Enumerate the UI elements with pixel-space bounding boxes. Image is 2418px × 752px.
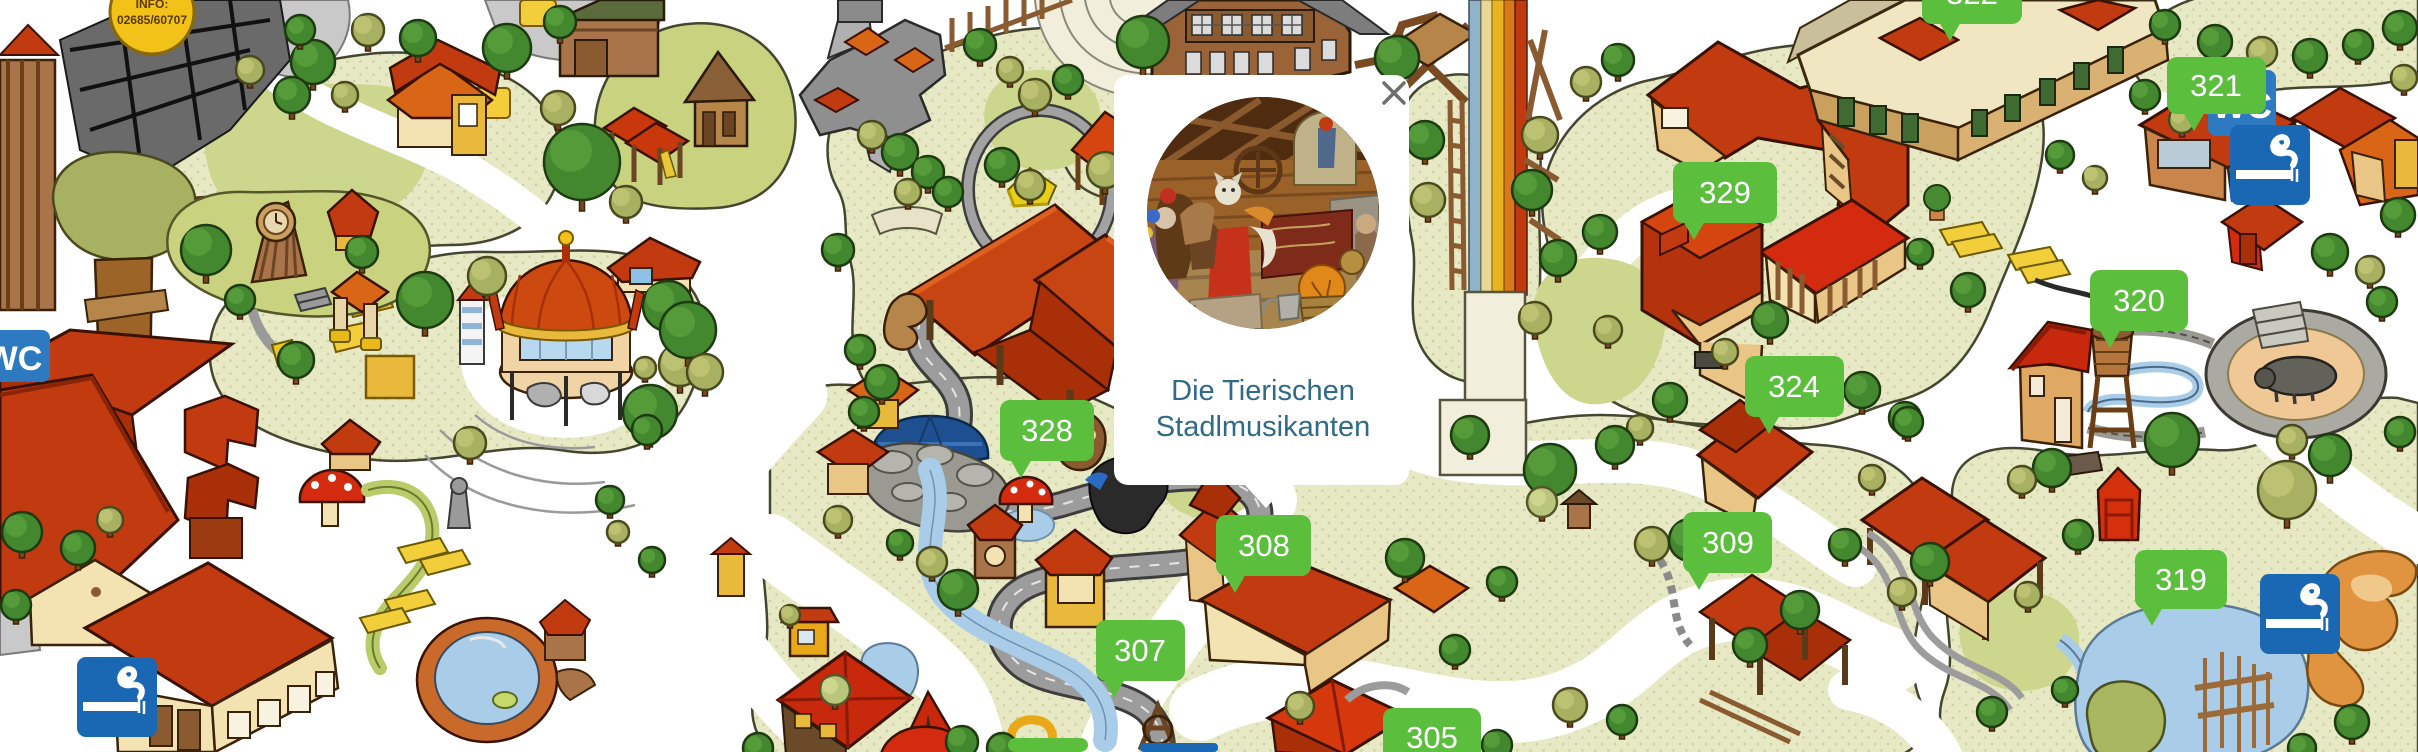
svg-text:321: 321	[2190, 68, 2242, 103]
svg-text:324: 324	[1768, 369, 1820, 404]
svg-text:305: 305	[1406, 720, 1458, 752]
svg-text:320: 320	[2113, 283, 2165, 318]
svg-text:319: 319	[2155, 562, 2207, 597]
svg-text:02685/60707: 02685/60707	[117, 13, 187, 27]
svg-text:INFO:: INFO:	[136, 0, 169, 11]
svg-text:322: 322	[1946, 0, 1998, 11]
svg-text:308: 308	[1238, 528, 1290, 563]
svg-text:328: 328	[1021, 413, 1073, 448]
svg-text:WC: WC	[0, 340, 42, 378]
svg-text:Stadlmusikanten: Stadlmusikanten	[1156, 411, 1370, 443]
svg-text:309: 309	[1702, 525, 1754, 560]
svg-text:Die Tierischen: Die Tierischen	[1171, 375, 1355, 407]
svg-text:307: 307	[1114, 633, 1166, 668]
svg-text:329: 329	[1699, 175, 1751, 210]
